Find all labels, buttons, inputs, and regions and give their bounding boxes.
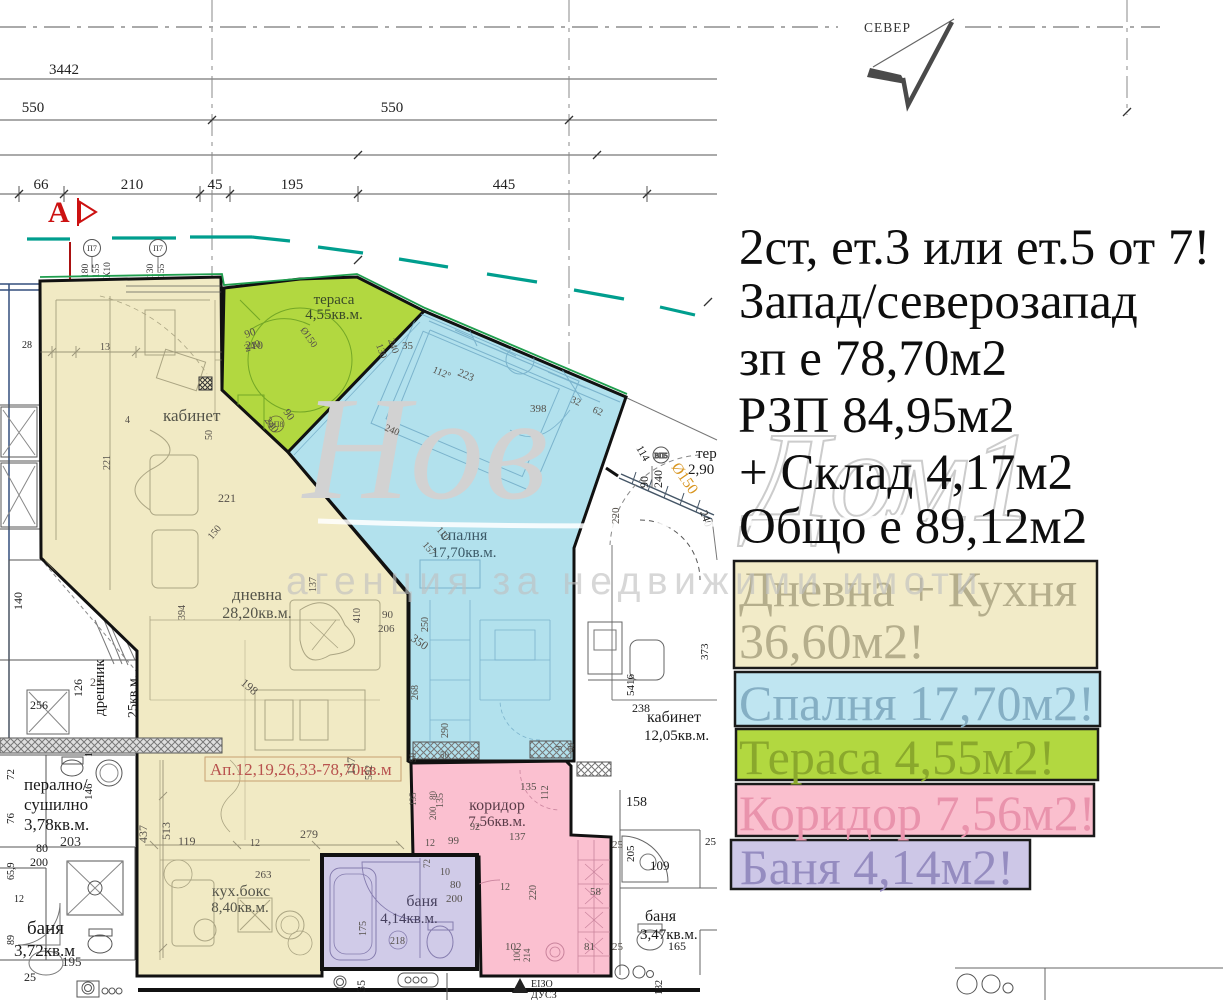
svg-text:437: 437	[136, 825, 150, 843]
svg-text:кух.бокс: кух.бокс	[212, 883, 270, 900]
svg-text:210: 210	[121, 177, 144, 193]
svg-text:200: 200	[446, 893, 463, 905]
svg-text:Коридор 7,56м2!: Коридор 7,56м2!	[739, 785, 1095, 841]
svg-text:тераса: тераса	[314, 292, 355, 308]
svg-text:90: 90	[637, 476, 651, 488]
svg-text:119: 119	[178, 834, 196, 848]
svg-text:65,9: 65,9	[6, 863, 17, 881]
svg-text:ЕІЗО: ЕІЗО	[531, 979, 553, 990]
svg-text:13: 13	[100, 342, 110, 353]
svg-text:135: 135	[520, 781, 537, 793]
svg-text:перално/: перално/	[24, 775, 88, 794]
svg-text:45: 45	[208, 177, 223, 193]
svg-text:135: 135	[408, 792, 418, 806]
svg-text:195: 195	[62, 954, 82, 969]
svg-text:50: 50	[408, 753, 418, 763]
svg-text:П7: П7	[87, 244, 97, 253]
svg-text:3,78кв.м.: 3,78кв.м.	[24, 815, 89, 834]
svg-text:25: 25	[24, 970, 36, 984]
svg-text:550: 550	[22, 100, 45, 116]
svg-text:66: 66	[34, 177, 50, 193]
svg-text:205: 205	[625, 845, 637, 862]
svg-text:РЗП 84,95м2: РЗП 84,95м2	[738, 388, 1015, 444]
svg-text:268: 268	[410, 685, 421, 700]
svg-text:140: 140	[11, 592, 25, 610]
svg-text:50: 50	[440, 750, 450, 760]
svg-text:баня: баня	[645, 908, 677, 925]
svg-text:290: 290	[440, 723, 451, 738]
svg-text:4,14кв.м.: 4,14кв.м.	[380, 911, 438, 927]
svg-text:25: 25	[90, 675, 102, 689]
svg-text:220: 220	[528, 885, 539, 900]
svg-text:72: 72	[422, 859, 432, 868]
svg-text:221: 221	[218, 491, 236, 505]
svg-text:92: 92	[470, 822, 480, 833]
svg-text:279: 279	[300, 827, 318, 841]
svg-text:263: 263	[255, 869, 272, 881]
svg-text:12: 12	[425, 838, 435, 849]
svg-text:80: 80	[450, 879, 462, 891]
svg-text:513: 513	[159, 822, 173, 840]
svg-text:12: 12	[250, 838, 260, 849]
svg-text:25: 25	[705, 836, 717, 848]
svg-text:112: 112	[540, 785, 551, 800]
svg-text:90: 90	[382, 609, 394, 621]
svg-text:238: 238	[632, 701, 650, 715]
svg-text:Запад/северозапад: Запад/северозапад	[739, 274, 1138, 330]
svg-text:195: 195	[281, 177, 304, 193]
svg-text:203: 203	[60, 835, 81, 850]
svg-text:9: 9	[554, 745, 564, 750]
svg-text:72: 72	[5, 769, 17, 780]
svg-text:80: 80	[428, 791, 438, 801]
svg-text:сушилно: сушилно	[24, 795, 88, 814]
svg-text:214: 214	[522, 948, 532, 962]
svg-text:25: 25	[612, 941, 624, 953]
svg-text:158: 158	[626, 795, 647, 810]
svg-text:76: 76	[5, 813, 17, 825]
svg-text:Спалня 17,70м2!: Спалня 17,70м2!	[739, 675, 1095, 731]
svg-text:кабинет: кабинет	[647, 709, 701, 726]
svg-text:кабинет: кабинет	[163, 406, 221, 425]
svg-text:373: 373	[699, 643, 711, 660]
svg-text:ВП5: ВП5	[654, 452, 668, 460]
svg-text:ВП8: ВП8	[268, 420, 283, 429]
svg-text:ДУСЗ: ДУСЗ	[531, 990, 557, 1000]
svg-text:12: 12	[14, 894, 24, 905]
svg-text:3442: 3442	[49, 62, 79, 78]
svg-text:221: 221	[102, 455, 113, 470]
svg-text:28: 28	[22, 340, 32, 351]
svg-text:592: 592	[364, 765, 375, 780]
svg-text:89: 89	[6, 935, 17, 945]
svg-text:12: 12	[500, 882, 510, 893]
svg-text:A: A	[48, 196, 70, 229]
svg-text:218: 218	[390, 936, 405, 947]
svg-text:137: 137	[509, 831, 526, 843]
svg-text:2ст, ет.3 или ет.5 от 7!: 2ст, ет.3 или ет.5 от 7!	[739, 220, 1210, 276]
svg-text:81: 81	[584, 941, 595, 953]
svg-text:+ Склад 4,17м2: + Склад 4,17м2	[739, 445, 1073, 501]
svg-text:тер: тер	[696, 446, 717, 462]
svg-text:П7: П7	[153, 244, 163, 253]
svg-text:8,40кв.м.: 8,40кв.м.	[211, 900, 269, 916]
svg-text:10: 10	[440, 867, 450, 878]
svg-text:Баня 4,14м2!: Баня 4,14м2!	[740, 839, 1014, 895]
svg-text:126: 126	[71, 679, 85, 697]
svg-text:5416: 5416	[625, 674, 637, 697]
svg-text:146: 146	[83, 783, 95, 800]
svg-text:394: 394	[177, 605, 188, 620]
svg-text:дневна: дневна	[232, 585, 282, 604]
svg-text:398: 398	[530, 403, 547, 415]
svg-text:200: 200	[428, 806, 438, 820]
svg-text:250: 250	[420, 617, 431, 632]
svg-text:СЕВЕР: СЕВЕР	[864, 20, 911, 35]
svg-text:28,20кв.м.: 28,20кв.м.	[222, 605, 291, 622]
svg-text:17,70кв.м.: 17,70кв.м.	[431, 545, 496, 561]
svg-text:баня: баня	[27, 918, 64, 939]
svg-text:12,05кв.м.: 12,05кв.м.	[644, 728, 709, 744]
svg-text:50: 50	[204, 430, 215, 440]
svg-text:80: 80	[36, 841, 48, 855]
svg-text:баня: баня	[406, 893, 438, 910]
svg-text:206: 206	[378, 623, 395, 635]
svg-text:445: 445	[493, 177, 516, 193]
svg-text:175: 175	[358, 921, 369, 936]
svg-text:4,55кв.м.: 4,55кв.м.	[305, 307, 363, 323]
svg-text:35: 35	[354, 980, 368, 992]
svg-text:40: 40	[566, 743, 576, 753]
svg-text:182: 182	[654, 980, 665, 995]
svg-text:240: 240	[651, 470, 665, 488]
svg-text:25: 25	[612, 839, 624, 851]
svg-text:165: 165	[668, 939, 686, 953]
svg-text:Тераса 4,55м2!: Тераса 4,55м2!	[739, 729, 1055, 785]
svg-text:36,60м2!: 36,60м2!	[739, 613, 925, 669]
svg-text:220: 220	[610, 507, 622, 524]
svg-text:137: 137	[344, 757, 358, 775]
svg-text:100: 100	[512, 948, 522, 962]
svg-text:256: 256	[30, 698, 48, 712]
svg-text:зп е 78,70м2: зп е 78,70м2	[739, 331, 1007, 387]
svg-text:35: 35	[402, 340, 414, 352]
svg-text:коридор: коридор	[469, 797, 525, 814]
svg-text:58: 58	[590, 886, 602, 898]
svg-text:4: 4	[125, 415, 130, 426]
svg-text:агенция за недвижими имоти: агенция за недвижими имоти	[286, 560, 984, 603]
svg-text:Общо е 89,12м2: Общо е 89,12м2	[739, 499, 1087, 555]
svg-text:Нов: Нов	[301, 367, 548, 531]
svg-text:99: 99	[448, 835, 460, 847]
svg-text:550: 550	[381, 100, 404, 116]
svg-text:410: 410	[352, 608, 363, 623]
svg-text:109: 109	[650, 858, 670, 873]
svg-text:200: 200	[30, 855, 48, 869]
